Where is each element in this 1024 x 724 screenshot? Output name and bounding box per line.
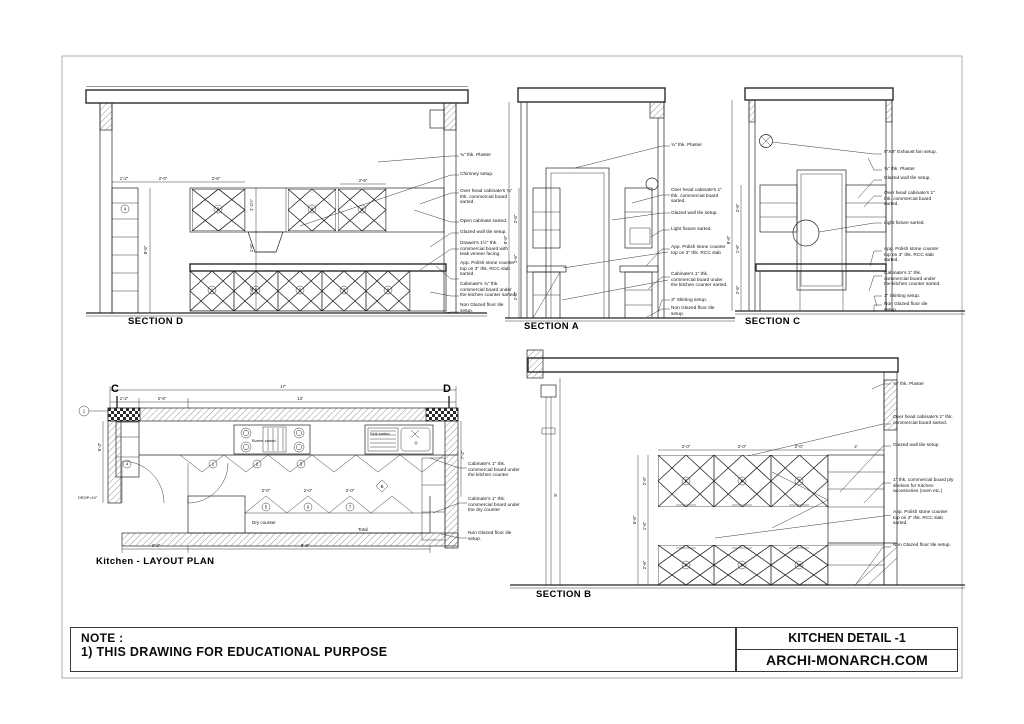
section-d-title: SECTION D (128, 316, 183, 327)
dim-label: 2'-6" (212, 176, 221, 181)
dry-counter-label: Dry counter (252, 520, 276, 525)
cabinet-number: 9 (741, 563, 744, 568)
annotation-note: Cabinate's ¾" thk. commercial board unde… (460, 282, 517, 299)
annotation-note: Non Glazed floor tile setup. (884, 302, 941, 313)
annotation-note: Open cabinate sarted. (460, 219, 517, 225)
dim-label: 8'-6" (726, 235, 731, 244)
annotation-note: 1" thk. commercial board ply shelves for… (893, 478, 955, 495)
annotation-note: 3" Skirting setup. (671, 298, 728, 304)
dim-label: 2'-6" (642, 476, 647, 485)
annotation-note: Light fixture sarted. (671, 227, 728, 233)
annotation-note: Over head cabinate's 1" thk. commercial … (884, 191, 941, 208)
cabinet-number: 4 (124, 207, 127, 212)
annotation-note: App. Polish stone counter top on 3" thk.… (893, 510, 955, 527)
dim-label: 2'-0" (159, 176, 168, 181)
annotation-note: Cabinate's 1" thk. commercial board unde… (671, 272, 728, 289)
dim-label: 2'-0" (346, 488, 355, 493)
dim-label: 1'-6" (249, 243, 254, 252)
section-c-title: SECTION C (745, 316, 800, 327)
section-a-leaders (562, 146, 670, 317)
burner-label: Burner sarted. (252, 438, 277, 443)
website-label: ARCHI-MONARCH.COM (737, 650, 957, 672)
annotation-note: Over head cabinate's ¾" thk. commercial … (460, 189, 517, 206)
note-line: 1) THIS DRAWING FOR EDUCATIONAL PURPOSE (81, 645, 735, 659)
cabinet-number: 7 (349, 505, 352, 510)
section-cut-b-marker: B (381, 484, 384, 489)
drop-label: DROP=10" (78, 495, 97, 500)
dim-label: 2'-6" (359, 178, 368, 183)
annotation-note: App. Polish stone counter top on 3" thk.… (884, 247, 941, 264)
layout-plan-title: Kitchen - LAYOUT PLAN (96, 556, 214, 567)
dim-label: 8'-8" (301, 543, 310, 548)
dim-label: 1'-2" (120, 396, 129, 401)
note-box: NOTE : 1) THIS DRAWING FOR EDUCATIONAL P… (70, 627, 736, 672)
dim-label: 3'-2" (152, 543, 161, 548)
annotation-note: App. Polish stone counter top on 3" thk.… (460, 261, 517, 278)
drawing-title: KITCHEN DETAIL -1 (737, 628, 957, 650)
annotation-note: Light fixture sarted. (884, 221, 941, 227)
note-heading: NOTE : (81, 631, 735, 645)
dim-label: 2'-0" (262, 488, 271, 493)
annotation-note: Over head cabinate's 1" thk. commercial … (893, 415, 955, 426)
annotation-note: Drawer's 1½" thk. commercial board with … (460, 241, 517, 258)
cabinet-number: 6 (741, 479, 744, 484)
dim-label: 2'-0" (304, 488, 313, 493)
annotation-note: Cabinate's 1" thk. commercial board unde… (468, 462, 525, 479)
cabinet-number: 4 (126, 462, 129, 467)
annotation-note: ¾" thk. Plaster (460, 153, 517, 159)
dim-label: 1'-6" (735, 244, 740, 253)
section-a-title: SECTION A (524, 321, 579, 332)
annotation-note: Cabinate's 1" thk. commercial board unde… (468, 497, 525, 514)
annotation-note: App. Polish stone counter top on 3" thk.… (671, 245, 728, 256)
annotation-note: Non Glazed floor tile setup. (893, 543, 955, 549)
annotation-note: Non Glazed floor tile setup. (460, 303, 517, 314)
dim-label: 2'-6" (249, 286, 254, 295)
annotation-note: Over head cabinate's 1" thk. commercial … (671, 188, 728, 205)
section-d-numbers: 4 3 2 4 1 5 6 7 8 (121, 205, 392, 294)
dim-label: 5'-3" (97, 442, 102, 451)
total-label: Total (358, 527, 368, 532)
annotation-note: ¾" thk. Plaster (884, 167, 941, 173)
dim-label: 2'-0" (795, 444, 804, 449)
cabinet-number: 6 (307, 505, 310, 510)
section-c-dims: 2'-6" 1'-6" 2'-6" 8'-6" (726, 203, 740, 294)
dim-label: 2'-6" (642, 560, 647, 569)
annotation-note: ¾" thk. Plaster (671, 143, 728, 149)
annotation-note: Non Glazed floor tile setup. (671, 306, 728, 317)
annotation-note: 3" Skirting setup. (884, 294, 941, 300)
dim-label: 8'-6" (143, 245, 148, 254)
drawing-linework: 1'-2" 2'-0" 2'-6" 2'-6" 8'-6" 1'-1½" 1'-… (0, 0, 1024, 724)
section-b-title: SECTION B (536, 589, 591, 600)
grid-marker-number: 1 (83, 409, 86, 414)
dim-label: 2'-6" (735, 285, 740, 294)
annotation-note: Glazed wall tile setup. (671, 211, 728, 217)
dim-label: 7'-2" (460, 450, 465, 459)
cabinet-number: 10 (797, 563, 802, 568)
dim-label: 2' (854, 444, 857, 449)
plan-linework (79, 386, 461, 553)
annotation-note: Non Glazed floor tile setup. (468, 531, 525, 542)
annotation-note: Glazed wall tile setup. (884, 176, 941, 182)
dim-label: 2'-6" (158, 396, 167, 401)
annotation-note: 9"X9" Exhaust fan setup. (884, 150, 941, 156)
section-cut-marker-c: C (111, 383, 119, 395)
dim-label: 8' (553, 493, 558, 496)
annotation-note: Glazed wall tile setup. (460, 230, 517, 236)
sink-label: Sink sarted. (370, 431, 391, 436)
annotation-note: Glazed wall tile setup. (893, 443, 955, 449)
dim-label: 17' (280, 384, 286, 389)
dim-label: 1'-6" (642, 521, 647, 530)
annotation-note: ¾" thk. Plaster (893, 382, 955, 388)
annotation-note: Cabinate's 1" thk. commercial board unde… (884, 271, 941, 288)
dim-label: 1'-2" (120, 176, 129, 181)
plan-numbers: 4 1 2 3 5 6 7 1 B (83, 409, 384, 511)
dim-label: 13' (297, 396, 303, 401)
section-c-leaders (772, 142, 882, 312)
dim-label: 2'-0" (682, 444, 691, 449)
cabinet-number: 8 (685, 563, 688, 568)
cabinet-number: 7 (798, 479, 801, 484)
title-block: KITCHEN DETAIL -1 ARCHI-MONARCH.COM (736, 627, 958, 672)
annotation-note: Chimney setup. (460, 172, 517, 178)
drawing-sheet: 1'-2" 2'-0" 2'-6" 2'-6" 8'-6" 1'-1½" 1'-… (0, 0, 1024, 724)
dim-label: 6'-6" (632, 515, 637, 524)
section-cut-marker-d: D (443, 383, 451, 395)
section-d-linework (86, 87, 487, 317)
cabinet-number: 5 (265, 505, 268, 510)
dim-label: 2'-6" (735, 203, 740, 212)
dim-label: 1'-1½" (249, 198, 254, 211)
dim-label: 2'-0" (738, 444, 747, 449)
